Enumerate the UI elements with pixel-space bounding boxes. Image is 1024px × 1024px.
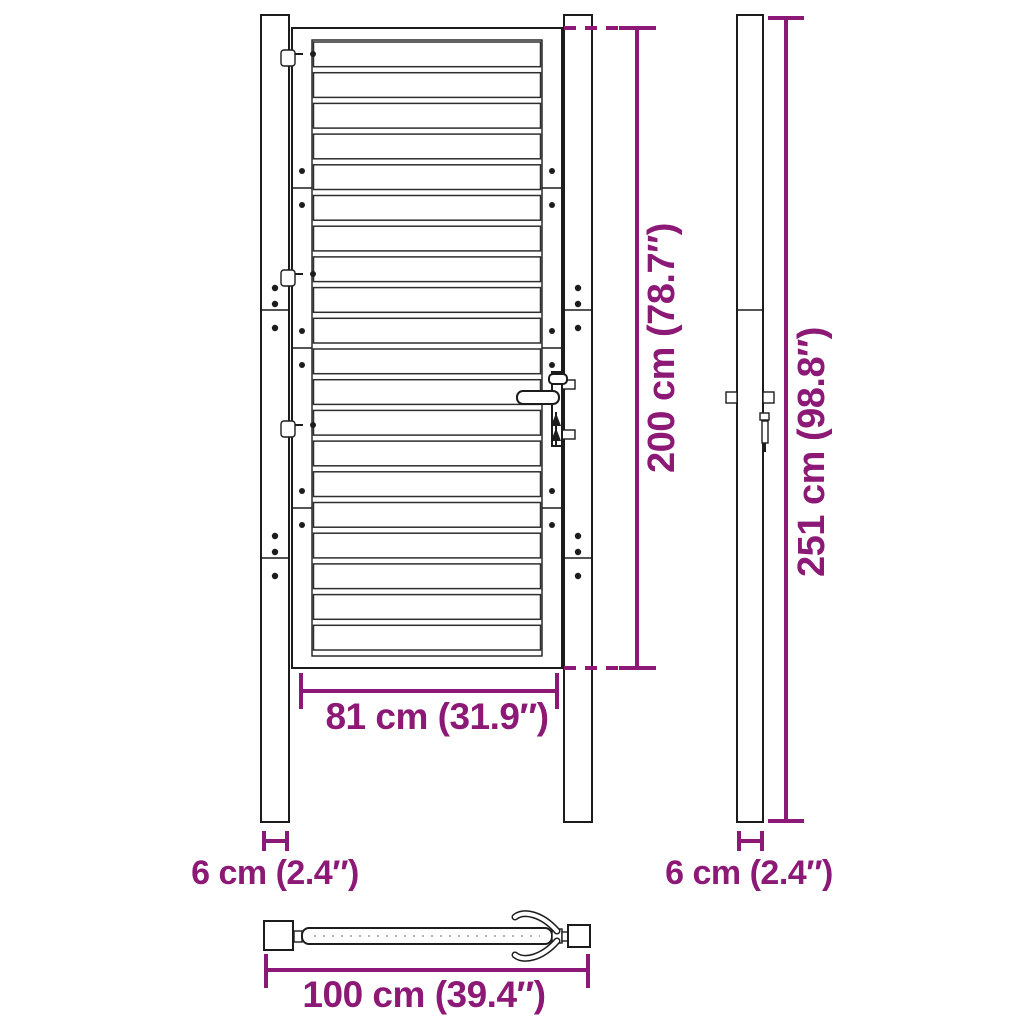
bolt-dot <box>272 285 278 291</box>
bolt-dot <box>272 549 278 555</box>
bolt-dot <box>299 488 305 494</box>
bolt-dot <box>299 362 305 368</box>
bolt-dot <box>549 522 555 528</box>
dimension-total-width: 100 cm (39.4″) <box>266 954 588 1015</box>
bolt-dot <box>575 533 581 539</box>
top-view <box>264 914 590 959</box>
gate-slat <box>314 349 541 374</box>
gate-slat <box>314 625 541 650</box>
side-post <box>737 15 763 822</box>
bracket-left-icon <box>726 392 737 403</box>
gate-height-label: 200 cm (78.7″) <box>641 223 683 473</box>
right-post <box>564 15 592 822</box>
left-post <box>261 15 289 822</box>
side-view <box>726 15 774 822</box>
dimension-post-width-front: 6 cm (2.4″) <box>191 831 359 892</box>
gate-width-label: 81 cm (31.9″) <box>325 696 548 737</box>
bolt-dot <box>549 168 555 174</box>
bracket-right-icon <box>763 392 774 403</box>
gate-slat <box>314 410 541 435</box>
dimension-gate-width: 81 cm (31.9″) <box>301 673 557 737</box>
bolt-dot <box>299 202 305 208</box>
top-hinge-icon <box>294 931 302 942</box>
diagram-canvas: 200 cm (78.7″) 81 cm (31.9″) 6 cm (2.4″)… <box>0 0 1024 1024</box>
top-post-right <box>568 925 590 947</box>
gate-slat <box>314 103 541 128</box>
bolt-dot <box>299 168 305 174</box>
bolt-dot <box>575 301 581 307</box>
gate-slat <box>314 318 541 343</box>
gate-slat <box>314 503 541 528</box>
bolt-dot <box>272 301 278 307</box>
bolt-dot <box>549 362 555 368</box>
bolt-dot <box>575 549 581 555</box>
gate-slat <box>314 257 541 282</box>
bolt-dot <box>272 573 278 579</box>
gate-slat <box>314 73 541 98</box>
bolt-dot <box>575 285 581 291</box>
gate-dimension-diagram: 200 cm (78.7″) 81 cm (31.9″) 6 cm (2.4″)… <box>0 0 1024 1024</box>
bolt-dot <box>575 325 581 331</box>
top-gate-bar <box>302 928 552 944</box>
post-width-front-label: 6 cm (2.4″) <box>191 854 359 892</box>
gate-slat <box>314 564 541 589</box>
post-width-side-label: 6 cm (2.4″) <box>665 854 833 892</box>
bolt-dot <box>549 328 555 334</box>
gate-slat <box>314 165 541 190</box>
gate-slat <box>314 595 541 620</box>
gate-slat <box>314 441 541 466</box>
gate-slat <box>314 472 541 497</box>
total-width-label: 100 cm (39.4″) <box>302 974 545 1015</box>
bolt-dot <box>272 325 278 331</box>
dimension-post-width-side: 6 cm (2.4″) <box>665 831 833 892</box>
gate-slat <box>314 533 541 558</box>
gate-slat <box>314 134 541 159</box>
bolt-dot <box>299 522 305 528</box>
bolt-dot <box>299 328 305 334</box>
dimension-post-height: 251 cm (98.8″) <box>768 18 833 821</box>
gate-slat <box>314 226 541 251</box>
gate-slat <box>314 380 541 405</box>
bolt-dot <box>549 202 555 208</box>
top-post-left <box>264 921 293 950</box>
gate-slat <box>314 42 541 67</box>
bolt-dot <box>272 533 278 539</box>
bolt-dot <box>575 573 581 579</box>
post-height-label: 251 cm (98.8″) <box>791 327 833 577</box>
gate-slat <box>314 196 541 221</box>
gate-slat <box>314 288 541 313</box>
bolt-dot <box>549 488 555 494</box>
